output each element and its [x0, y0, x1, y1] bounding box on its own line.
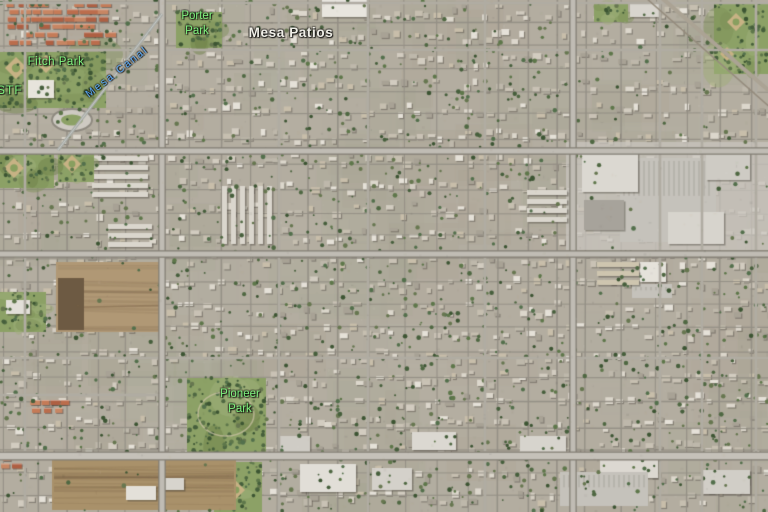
satellite-imagery-canvas: [0, 0, 768, 512]
satellite-map-viewport[interactable]: PorterParkMesa PatiosFitch ParkMesa Cana…: [0, 0, 768, 512]
